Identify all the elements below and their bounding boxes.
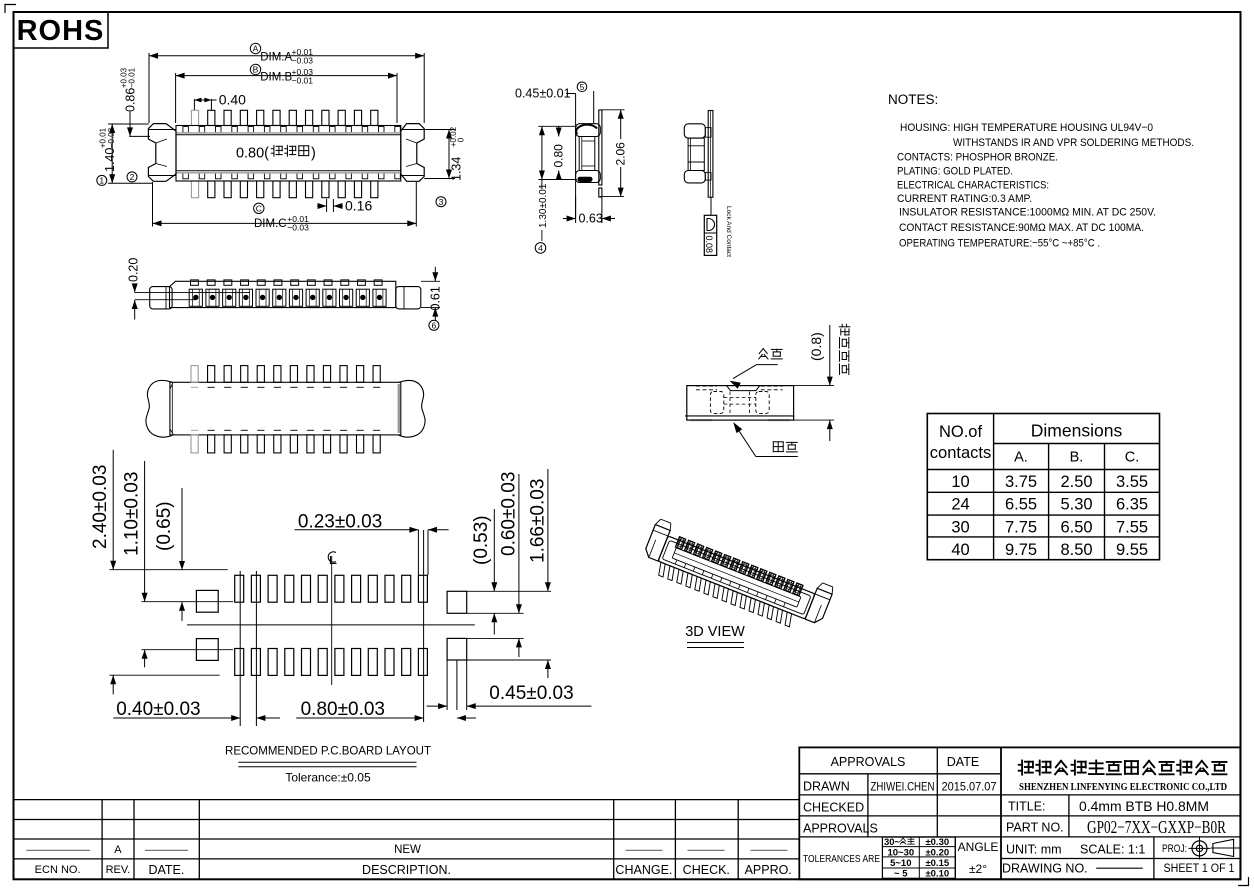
svg-text:1.10±0.03: 1.10±0.03: [122, 472, 143, 556]
svg-text:2: 2: [130, 172, 135, 182]
svg-text:(0.8): (0.8): [808, 332, 824, 361]
svg-text:−0.03: −0.03: [107, 127, 116, 148]
svg-text:Tolerance:±0.05: Tolerance:±0.05: [285, 771, 371, 785]
svg-text:−0.03: −0.03: [287, 223, 309, 233]
svg-text:1.40: 1.40: [103, 148, 117, 172]
svg-text:CONTACT RESISTANCE:90MΩ MAX.: CONTACT RESISTANCE:90MΩ MAX. AT DC 100MA…: [899, 222, 1144, 234]
svg-text:NO.of: NO.of: [939, 423, 983, 441]
svg-text:6.55: 6.55: [1005, 496, 1037, 514]
svg-text:CHANGE.: CHANGE.: [615, 863, 672, 877]
svg-text:TITLE:: TITLE:: [1008, 800, 1046, 814]
svg-text:~ 5: ~ 5: [894, 869, 908, 880]
svg-text:40: 40: [951, 541, 969, 559]
svg-text:0.60±0.03: 0.60±0.03: [499, 472, 520, 556]
svg-text:PLATING: GOLD PLATED.: PLATING: GOLD PLATED.: [897, 166, 1013, 178]
svg-text:ECN NO.: ECN NO.: [35, 864, 81, 876]
svg-text:−0.03: −0.03: [292, 56, 314, 66]
svg-text:APPROVALS: APPROVALS: [803, 822, 878, 836]
svg-text:(0.65): (0.65): [154, 501, 175, 551]
svg-text:DIM.C: DIM.C: [254, 218, 287, 230]
svg-text:TOLERANCES ARE: TOLERANCES ARE: [803, 853, 880, 865]
svg-text:CURRENT RATING:0.3 AMP.: CURRENT RATING:0.3 AMP.: [897, 193, 1032, 205]
svg-text:PROJ:: PROJ:: [1162, 843, 1187, 855]
svg-text:DESCRIPTION.: DESCRIPTION.: [362, 863, 451, 877]
svg-text:3: 3: [439, 197, 444, 207]
svg-text:HOUSING: HIGH TEMPERATURE HO: HOUSING: HIGH TEMPERATURE HOUSING UL94V−…: [900, 122, 1153, 134]
svg-text:CHECK.: CHECK.: [683, 863, 730, 877]
svg-text:A.: A.: [1014, 450, 1028, 466]
svg-text:C.: C.: [1125, 450, 1140, 466]
svg-text:3.75: 3.75: [1005, 473, 1037, 491]
svg-text:0.40: 0.40: [219, 92, 246, 108]
svg-text:0.61: 0.61: [429, 286, 443, 310]
svg-text:NEW: NEW: [394, 844, 421, 856]
svg-text:0.63: 0.63: [579, 212, 603, 226]
svg-text:): ): [311, 145, 316, 161]
svg-text:+0.02: +0.02: [449, 126, 458, 147]
svg-text:5.30: 5.30: [1060, 496, 1092, 514]
svg-text:0: 0: [457, 137, 466, 142]
svg-text:DRAWING NO.: DRAWING NO.: [1002, 862, 1088, 876]
svg-text:6: 6: [432, 321, 437, 331]
svg-text:1: 1: [99, 176, 104, 186]
svg-text:B: B: [253, 65, 259, 75]
svg-text:NOTES:: NOTES:: [888, 92, 938, 107]
svg-text:1.66±0.03: 1.66±0.03: [528, 479, 549, 563]
svg-text:6.35: 6.35: [1116, 496, 1148, 514]
svg-text:GP02−7XX−GXXP−B0R: GP02−7XX−GXXP−B0R: [1087, 817, 1226, 837]
svg-text:5~10: 5~10: [890, 858, 911, 869]
svg-text:0.80: 0.80: [552, 144, 566, 168]
svg-text:0.40±0.03: 0.40±0.03: [116, 699, 200, 720]
svg-text:B.: B.: [1070, 450, 1084, 466]
svg-text:CONTACTS: PHOSPHOR BRONZE.: CONTACTS: PHOSPHOR BRONZE.: [897, 152, 1058, 164]
svg-text:REV.: REV.: [106, 864, 131, 876]
svg-text:24: 24: [951, 496, 969, 514]
svg-text:DIM.A: DIM.A: [260, 52, 292, 64]
svg-text:RECOMMENDED P.C.BOARD LAYOUT: RECOMMENDED P.C.BOARD LAYOUT: [225, 746, 431, 758]
svg-text:−0.01: −0.01: [128, 67, 137, 88]
svg-text:ZHIWEI.CHEN: ZHIWEI.CHEN: [871, 782, 935, 794]
svg-text:10: 10: [951, 473, 969, 491]
svg-text:OPERATING TEMPERATURE:−55°C: OPERATING TEMPERATURE:−55°C ~+85°C .: [899, 238, 1100, 250]
svg-text:±0.15: ±0.15: [925, 858, 949, 869]
svg-text:1.34: 1.34: [450, 157, 464, 181]
svg-text:30: 30: [951, 518, 969, 536]
svg-text:0.20: 0.20: [127, 258, 141, 282]
svg-text:±0.20: ±0.20: [925, 847, 949, 858]
svg-text:7.55: 7.55: [1116, 518, 1148, 536]
svg-text:1.30±0.01: 1.30±0.01: [538, 183, 549, 228]
svg-text:DATE: DATE: [947, 755, 979, 769]
svg-text:(0.53): (0.53): [471, 515, 492, 565]
svg-text:contacts: contacts: [930, 444, 991, 462]
svg-text:±2°: ±2°: [969, 862, 987, 876]
svg-text:0.80(: 0.80(: [236, 145, 269, 161]
svg-text:0.16: 0.16: [345, 198, 372, 214]
svg-text:ROHS: ROHS: [17, 15, 105, 47]
svg-text:ANGLE: ANGLE: [958, 840, 999, 854]
svg-text:5: 5: [580, 82, 585, 92]
svg-text:ELECTRICAL CHARACTERISTICS:: ELECTRICAL CHARACTERISTICS:: [897, 180, 1049, 192]
svg-text:2015.07.07: 2015.07.07: [942, 782, 997, 794]
svg-text:9.75: 9.75: [1005, 541, 1037, 559]
svg-text:10~30: 10~30: [887, 847, 914, 858]
svg-text:SCALE: 1:1: SCALE: 1:1: [1080, 843, 1145, 857]
svg-text:2.06: 2.06: [614, 142, 628, 166]
svg-text:UNIT: mm: UNIT: mm: [1006, 843, 1062, 857]
svg-text:0.08: 0.08: [704, 236, 714, 254]
svg-text:9.55: 9.55: [1116, 541, 1148, 559]
svg-text:C: C: [256, 204, 262, 214]
svg-text:0.45±0.03: 0.45±0.03: [489, 683, 573, 704]
svg-text:0.45±0.01: 0.45±0.01: [515, 87, 571, 101]
svg-text:PART NO.: PART NO.: [1006, 821, 1064, 835]
svg-text:APPROVALS: APPROVALS: [831, 755, 906, 769]
svg-text:0.86: 0.86: [124, 88, 138, 112]
svg-text:DIM.B: DIM.B: [260, 71, 292, 83]
svg-text:APPRO.: APPRO.: [745, 863, 792, 877]
svg-text:A: A: [253, 44, 259, 54]
svg-text:4: 4: [538, 243, 543, 253]
svg-text:SHEET 1 OF 1: SHEET 1 OF 1: [1164, 863, 1235, 875]
svg-text:3D VIEW: 3D VIEW: [685, 624, 745, 640]
svg-text:3.55: 3.55: [1116, 473, 1148, 491]
svg-text:SHENZHEN LINFENYING ELECTRONIC: SHENZHEN LINFENYING ELECTRONIC CO.,LTD: [1019, 782, 1227, 793]
svg-text:6.50: 6.50: [1060, 518, 1092, 536]
svg-text:Dimensions: Dimensions: [1031, 421, 1123, 441]
svg-text:INSULATOR RESISTANCE:1000MΩ: INSULATOR RESISTANCE:1000MΩ MIN. AT DC 2…: [899, 207, 1156, 219]
svg-text:±0.10: ±0.10: [925, 869, 949, 880]
svg-text:2.50: 2.50: [1060, 473, 1092, 491]
svg-text:Lock And Contact: Lock And Contact: [725, 206, 732, 257]
svg-text:WITHSTANDS IR AND VPR SOLD: WITHSTANDS IR AND VPR SOLDERING METHODS.: [953, 137, 1194, 149]
svg-text:2.40±0.03: 2.40±0.03: [90, 465, 111, 549]
svg-text:CHECKED: CHECKED: [803, 801, 864, 815]
svg-text:DRAWN: DRAWN: [803, 780, 850, 794]
svg-text:0.4mm BTB H0.8MM: 0.4mm BTB H0.8MM: [1079, 798, 1209, 814]
svg-text:0.80±0.03: 0.80±0.03: [301, 699, 385, 720]
svg-text:DATE.: DATE.: [148, 863, 184, 877]
svg-text:A: A: [114, 844, 122, 856]
svg-text:8.50: 8.50: [1060, 541, 1092, 559]
svg-text:7.75: 7.75: [1005, 518, 1037, 536]
svg-text:−0.01: −0.01: [292, 75, 314, 85]
